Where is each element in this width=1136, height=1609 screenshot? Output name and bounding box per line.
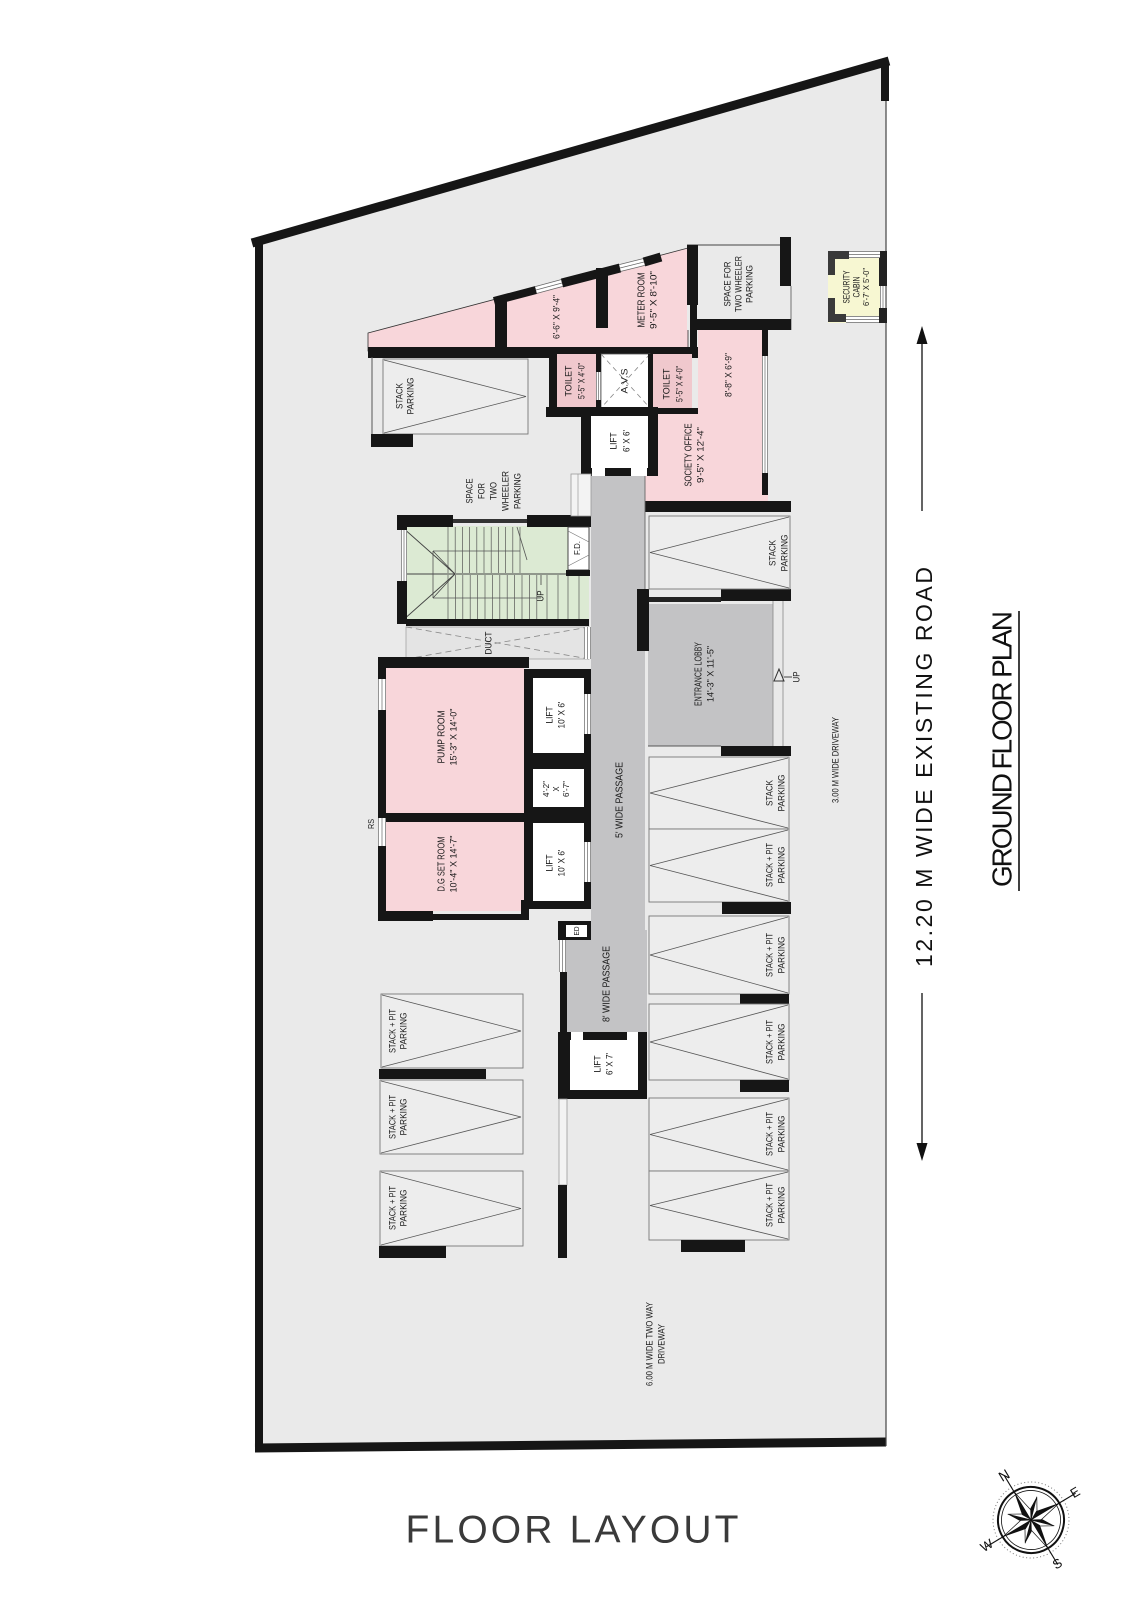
- svg-text:UP: UP: [535, 590, 545, 601]
- svg-text:W: W: [978, 1535, 997, 1555]
- svg-text:STACK + PIT: STACK + PIT: [764, 843, 774, 887]
- svg-text:WHEELER: WHEELER: [500, 471, 510, 511]
- svg-text:PARKING: PARKING: [776, 775, 786, 812]
- svg-text:STACK + PIT: STACK + PIT: [764, 1183, 774, 1227]
- svg-text:STACK + PIT: STACK + PIT: [387, 1095, 397, 1139]
- svg-text:STACK + PIT: STACK + PIT: [764, 1020, 774, 1064]
- svg-text:SPACE FOR: SPACE FOR: [722, 261, 732, 306]
- svg-text:10' X 6': 10' X 6': [556, 701, 566, 728]
- svg-text:9'-5" X 8'-10": 9'-5" X 8'-10": [648, 271, 658, 329]
- svg-text:PARKING: PARKING: [744, 265, 754, 303]
- svg-text:ENTRANCE LOBBY: ENTRANCE LOBBY: [694, 642, 705, 706]
- svg-text:PARKING: PARKING: [776, 1116, 786, 1153]
- svg-text:ED: ED: [572, 926, 581, 936]
- svg-text:PARKING: PARKING: [512, 473, 522, 509]
- svg-text:PARKING: PARKING: [405, 378, 415, 415]
- svg-text:PARKING: PARKING: [398, 1099, 408, 1136]
- svg-text:12.20 M WIDE EXISTING ROAD: 12.20 M WIDE EXISTING ROAD: [911, 567, 937, 967]
- svg-text:STACK + PIT: STACK + PIT: [387, 1186, 397, 1230]
- svg-text:STACK + PIT: STACK + PIT: [764, 1112, 774, 1156]
- svg-text:LIFT: LIFT: [545, 706, 556, 723]
- svg-text:LIFT: LIFT: [593, 1055, 604, 1072]
- svg-text:6.00 M WIDE TWO WAY: 6.00 M WIDE TWO WAY: [644, 1302, 654, 1386]
- svg-text:15'-3" X 14'-0": 15'-3" X 14'-0": [448, 709, 458, 766]
- svg-text:SPACE: SPACE: [464, 479, 474, 504]
- svg-text:E: E: [1067, 1483, 1082, 1500]
- svg-text:RS: RS: [367, 819, 376, 829]
- svg-text:STACK + PIT: STACK + PIT: [387, 1009, 397, 1053]
- svg-text:S: S: [1050, 1555, 1065, 1572]
- svg-text:5'-5" X 4'-0": 5'-5" X 4'-0": [576, 363, 586, 399]
- svg-text:CABIN: CABIN: [851, 277, 861, 298]
- svg-text:LIFT: LIFT: [609, 432, 620, 449]
- svg-text:A.V.S: A.V.S: [619, 369, 629, 394]
- svg-text:PARKING: PARKING: [779, 535, 789, 572]
- svg-text:TWO WHEELER: TWO WHEELER: [733, 256, 743, 312]
- svg-text:DUCT: DUCT: [483, 631, 493, 654]
- svg-text:SOCIETY OFFICE: SOCIETY OFFICE: [684, 423, 695, 486]
- svg-text:5'-5" X 4'-0": 5'-5" X 4'-0": [674, 366, 684, 402]
- svg-text:F.D.: F.D.: [573, 541, 582, 555]
- svg-text:PARKING: PARKING: [398, 1190, 408, 1227]
- svg-text:8' WIDE PASSAGE: 8' WIDE PASSAGE: [602, 946, 613, 1022]
- svg-text:TWO: TWO: [488, 482, 498, 500]
- svg-text:STACK: STACK: [394, 382, 404, 409]
- svg-text:10' X 6': 10' X 6': [556, 849, 566, 876]
- svg-text:TOILET: TOILET: [661, 368, 671, 399]
- svg-text:TOILET: TOILET: [563, 365, 573, 396]
- svg-text:14'-3" X 11'-5": 14'-3" X 11'-5": [705, 646, 715, 702]
- svg-text:UP: UP: [791, 671, 801, 682]
- svg-text:PUMP ROOM: PUMP ROOM: [437, 711, 448, 764]
- svg-text:FLOOR LAYOUT: FLOOR LAYOUT: [406, 1508, 739, 1551]
- svg-text:LIFT: LIFT: [545, 854, 556, 871]
- svg-text:6'-6" X 9'-4": 6'-6" X 9'-4": [551, 295, 561, 339]
- svg-text:6' X 6': 6' X 6': [621, 430, 631, 452]
- svg-text:X: X: [552, 786, 561, 791]
- svg-text:PARKING: PARKING: [776, 937, 786, 974]
- svg-text:6'-7' X 5'-0": 6'-7' X 5'-0": [861, 268, 871, 306]
- svg-text:STACK: STACK: [764, 779, 774, 806]
- svg-text:3.00 M WIDE DRIVEWAY: 3.00 M WIDE DRIVEWAY: [830, 717, 840, 803]
- svg-text:PARKING: PARKING: [398, 1013, 408, 1050]
- svg-text:SECURITY: SECURITY: [841, 270, 851, 303]
- svg-text:5' WIDE PASSAGE: 5' WIDE PASSAGE: [615, 762, 626, 838]
- svg-text:FOR: FOR: [476, 483, 486, 499]
- svg-text:6'-7": 6'-7": [562, 781, 571, 797]
- svg-text:METER ROOM: METER ROOM: [637, 273, 648, 328]
- svg-text:4'-2": 4'-2": [542, 781, 551, 797]
- svg-text:STACK: STACK: [767, 539, 777, 566]
- svg-text:PARKING: PARKING: [776, 847, 786, 884]
- svg-text:8'-8" X 6'-9": 8'-8" X 6'-9": [723, 353, 733, 397]
- svg-text:PARKING: PARKING: [776, 1187, 786, 1224]
- svg-text:D.G SET ROOM: D.G SET ROOM: [437, 837, 448, 892]
- svg-text:9'-5" X 12'-4": 9'-5" X 12'-4": [695, 427, 705, 483]
- svg-text:DRIVEWAY: DRIVEWAY: [656, 1324, 666, 1364]
- svg-text:10'-4" X 14'-7": 10'-4" X 14'-7": [448, 836, 458, 893]
- svg-text:STACK + PIT: STACK + PIT: [764, 933, 774, 977]
- svg-text:6' X 7': 6' X 7': [604, 1053, 614, 1075]
- svg-text:GROUND FLOOR PLAN: GROUND FLOOR PLAN: [986, 611, 1017, 887]
- svg-text:N: N: [996, 1466, 1013, 1485]
- svg-text:PARKING: PARKING: [776, 1024, 786, 1061]
